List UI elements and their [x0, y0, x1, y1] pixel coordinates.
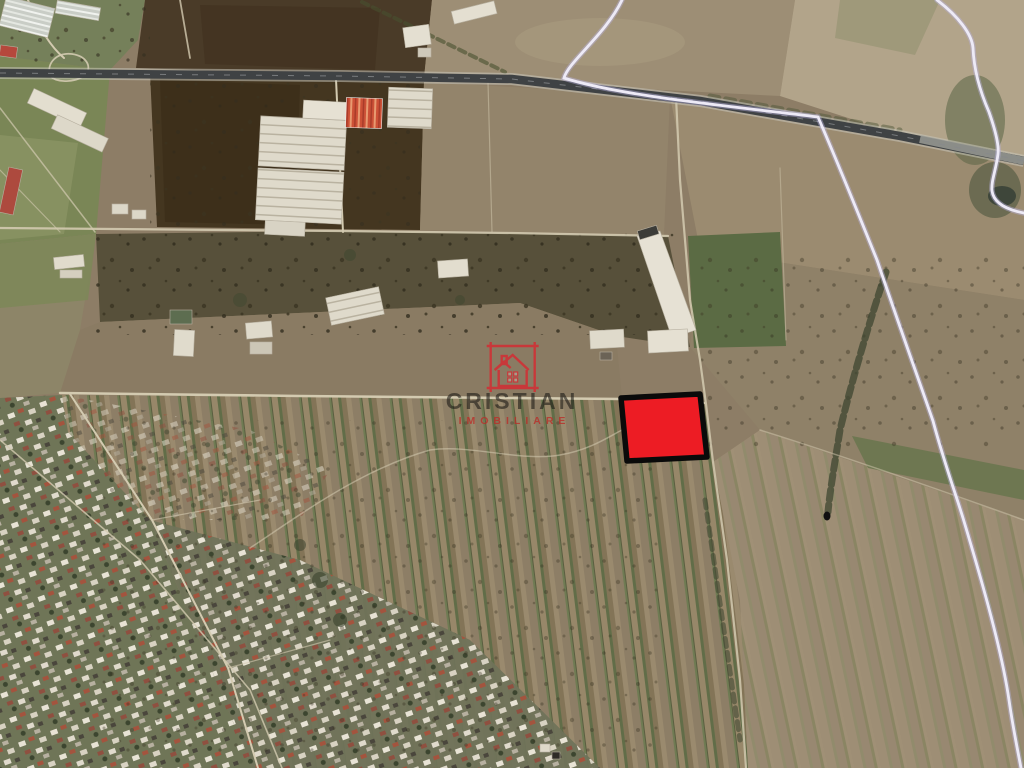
satellite-map: CRISTIAN IMOBILIARE [0, 0, 1024, 768]
map-dot-marker [824, 512, 831, 521]
highlighted-parcel [621, 394, 707, 461]
map-image [0, 0, 1024, 768]
